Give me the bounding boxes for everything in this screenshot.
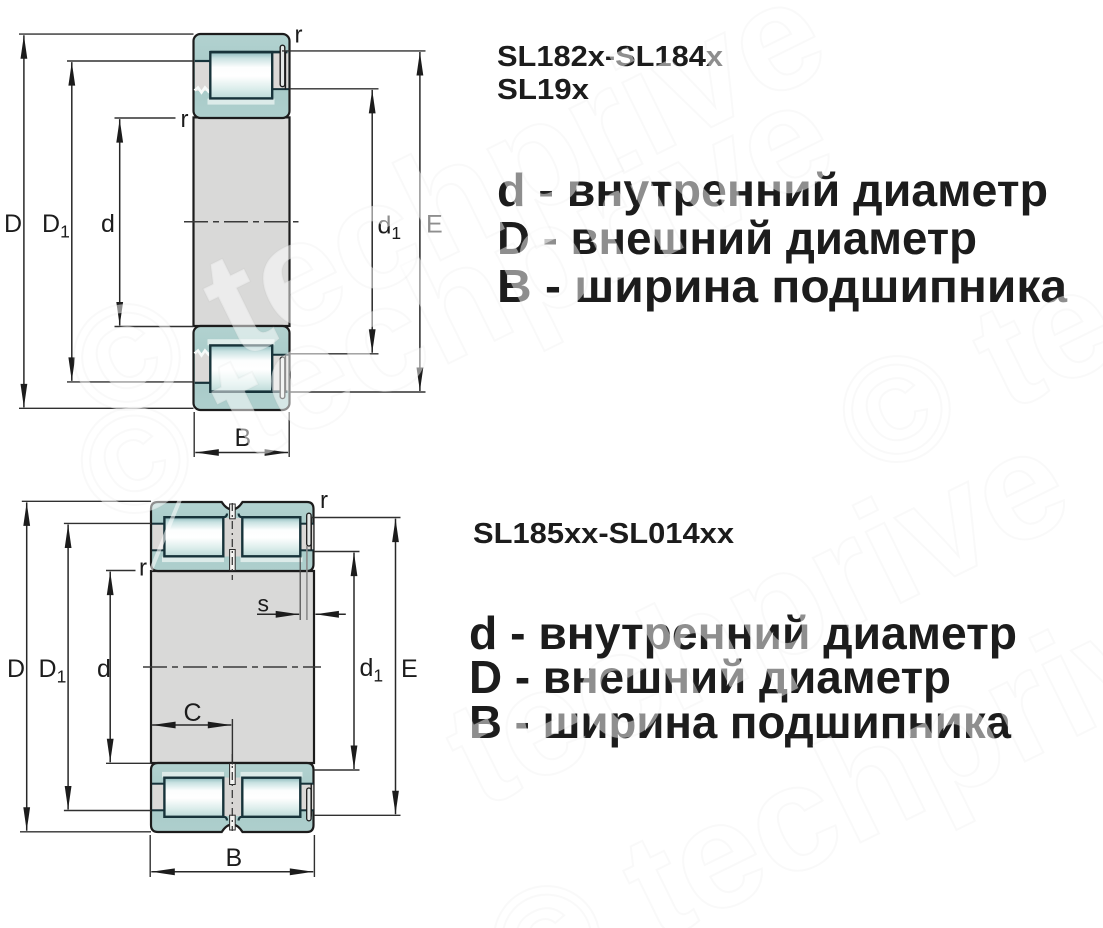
svg-text:s: s [258, 591, 270, 617]
svg-text:D: D [4, 210, 22, 238]
svg-text:r: r [139, 555, 147, 582]
svg-text:d: d [101, 210, 115, 238]
svg-text:C: C [184, 699, 202, 727]
svg-text:E: E [401, 655, 418, 683]
svg-text:r: r [320, 487, 328, 514]
svg-text:r: r [181, 106, 189, 133]
svg-text:SL185xx-SL014xx: SL185xx-SL014xx [473, 518, 734, 550]
svg-text:D: D [7, 655, 25, 683]
svg-text:r: r [295, 22, 303, 49]
svg-text:B: B [226, 844, 243, 872]
svg-text:d: d [97, 655, 111, 683]
